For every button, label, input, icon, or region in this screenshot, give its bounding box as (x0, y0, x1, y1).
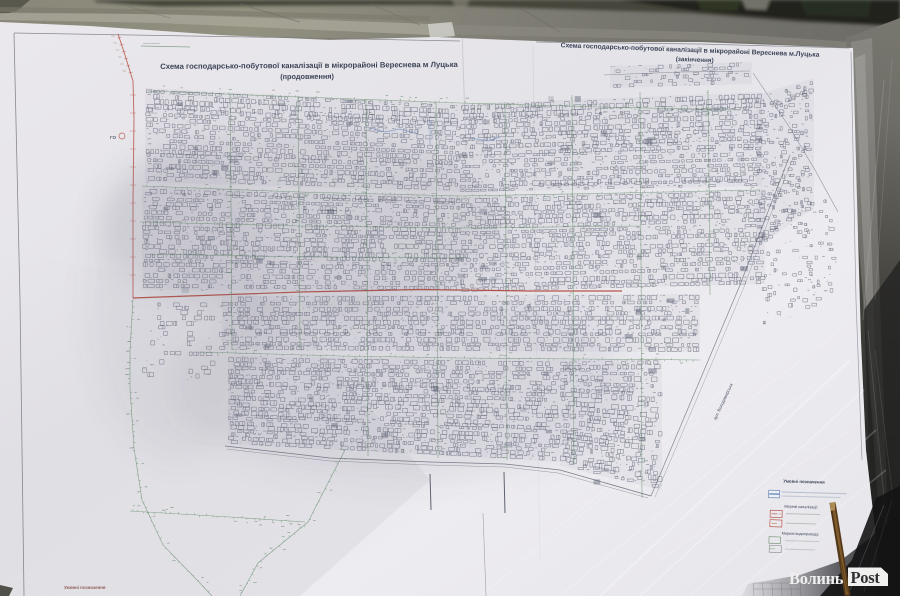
svg-text:Post: Post (851, 568, 881, 587)
svg-text:(закінчення): (закінчення) (676, 55, 714, 64)
svg-text:Умовні позначення: Умовні позначення (64, 585, 106, 590)
svg-text:ГО: ГО (110, 135, 117, 140)
svg-text:(продовження): (продовження) (280, 72, 334, 81)
svg-text:Волинь: Волинь (789, 569, 844, 588)
